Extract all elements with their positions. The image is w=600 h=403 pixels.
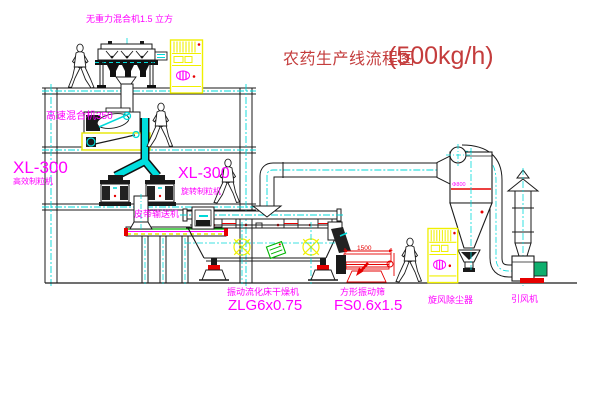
- person-figure-roof: [69, 44, 95, 88]
- exhaust-duct: [253, 156, 450, 217]
- granulator-left: [99, 180, 131, 206]
- control-cabinet-lower: [428, 229, 458, 283]
- mixer-motor: [155, 52, 167, 60]
- person-figure-floor2: [147, 103, 173, 147]
- fluid-bed-dryer: [180, 207, 351, 284]
- diagram-canvas: Φ800 1500: [0, 0, 600, 403]
- vibrating-sieve: 1500: [336, 245, 394, 282]
- dryer-discharge-chute: [328, 222, 351, 253]
- control-cabinet-upper: [171, 40, 203, 93]
- dryer-name-plate: [266, 242, 285, 259]
- person-figure-floor3: [214, 159, 240, 203]
- high-speed-mixer: [82, 108, 150, 150]
- dryer-feed-box: [192, 207, 214, 229]
- granulator-right: [144, 180, 176, 206]
- induced-draft-fan: [512, 256, 547, 283]
- sieve-dimension-text: 1500: [357, 245, 372, 252]
- process-flow-drawing: Φ800 1500: [0, 0, 600, 403]
- cyclone-size-text: Φ800: [452, 182, 466, 188]
- gravity-free-mixer: [95, 38, 167, 116]
- fan-motor: [534, 262, 547, 276]
- fan-base: [520, 278, 544, 283]
- person-figure-ground: [396, 238, 422, 282]
